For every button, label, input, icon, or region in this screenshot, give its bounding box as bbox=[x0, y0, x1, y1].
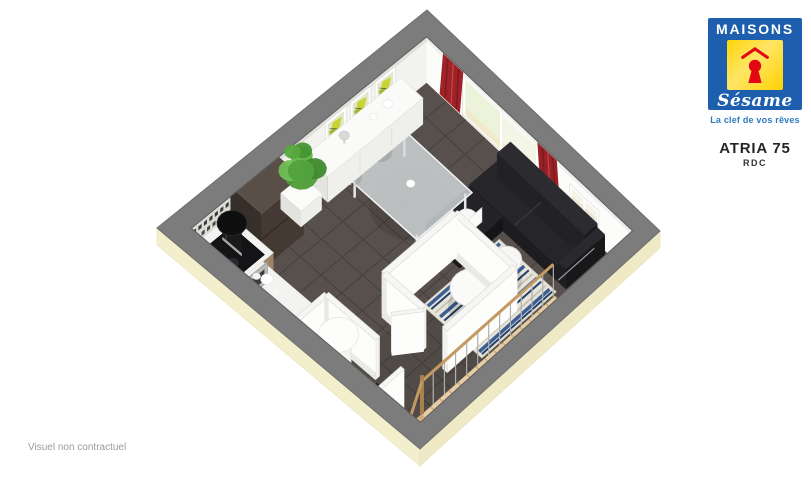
brand-script: Sésame bbox=[717, 92, 792, 110]
plan-title: ATRIA 75 bbox=[700, 140, 810, 157]
brand-word: MAISONS bbox=[716, 21, 794, 37]
brand-logo: MAISONS Sésame La clef de vos rêves ATRI… bbox=[700, 18, 810, 168]
brand-tagline: La clef de vos rêves bbox=[700, 115, 810, 125]
floorplan-render-page: MAISONS Sésame La clef de vos rêves ATRI… bbox=[0, 0, 811, 480]
disclaimer-text: Visuel non contractuel bbox=[28, 442, 126, 453]
keyhole-icon bbox=[727, 40, 783, 90]
plan-level: RDC bbox=[700, 158, 810, 168]
floorplan-3d-render bbox=[0, 0, 811, 480]
brand-logo-box: MAISONS Sésame bbox=[708, 18, 802, 110]
keyhole-roof-icon bbox=[736, 44, 774, 86]
